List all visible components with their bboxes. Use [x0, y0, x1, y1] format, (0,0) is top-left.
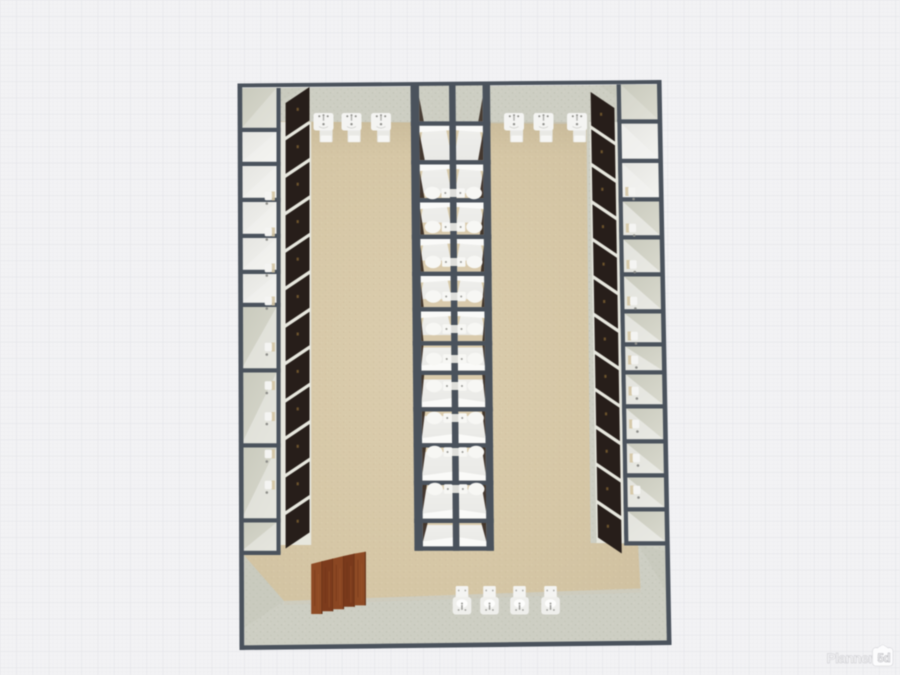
svg-text:5d: 5d	[878, 653, 891, 665]
svg-text:Planner: Planner	[827, 650, 875, 666]
